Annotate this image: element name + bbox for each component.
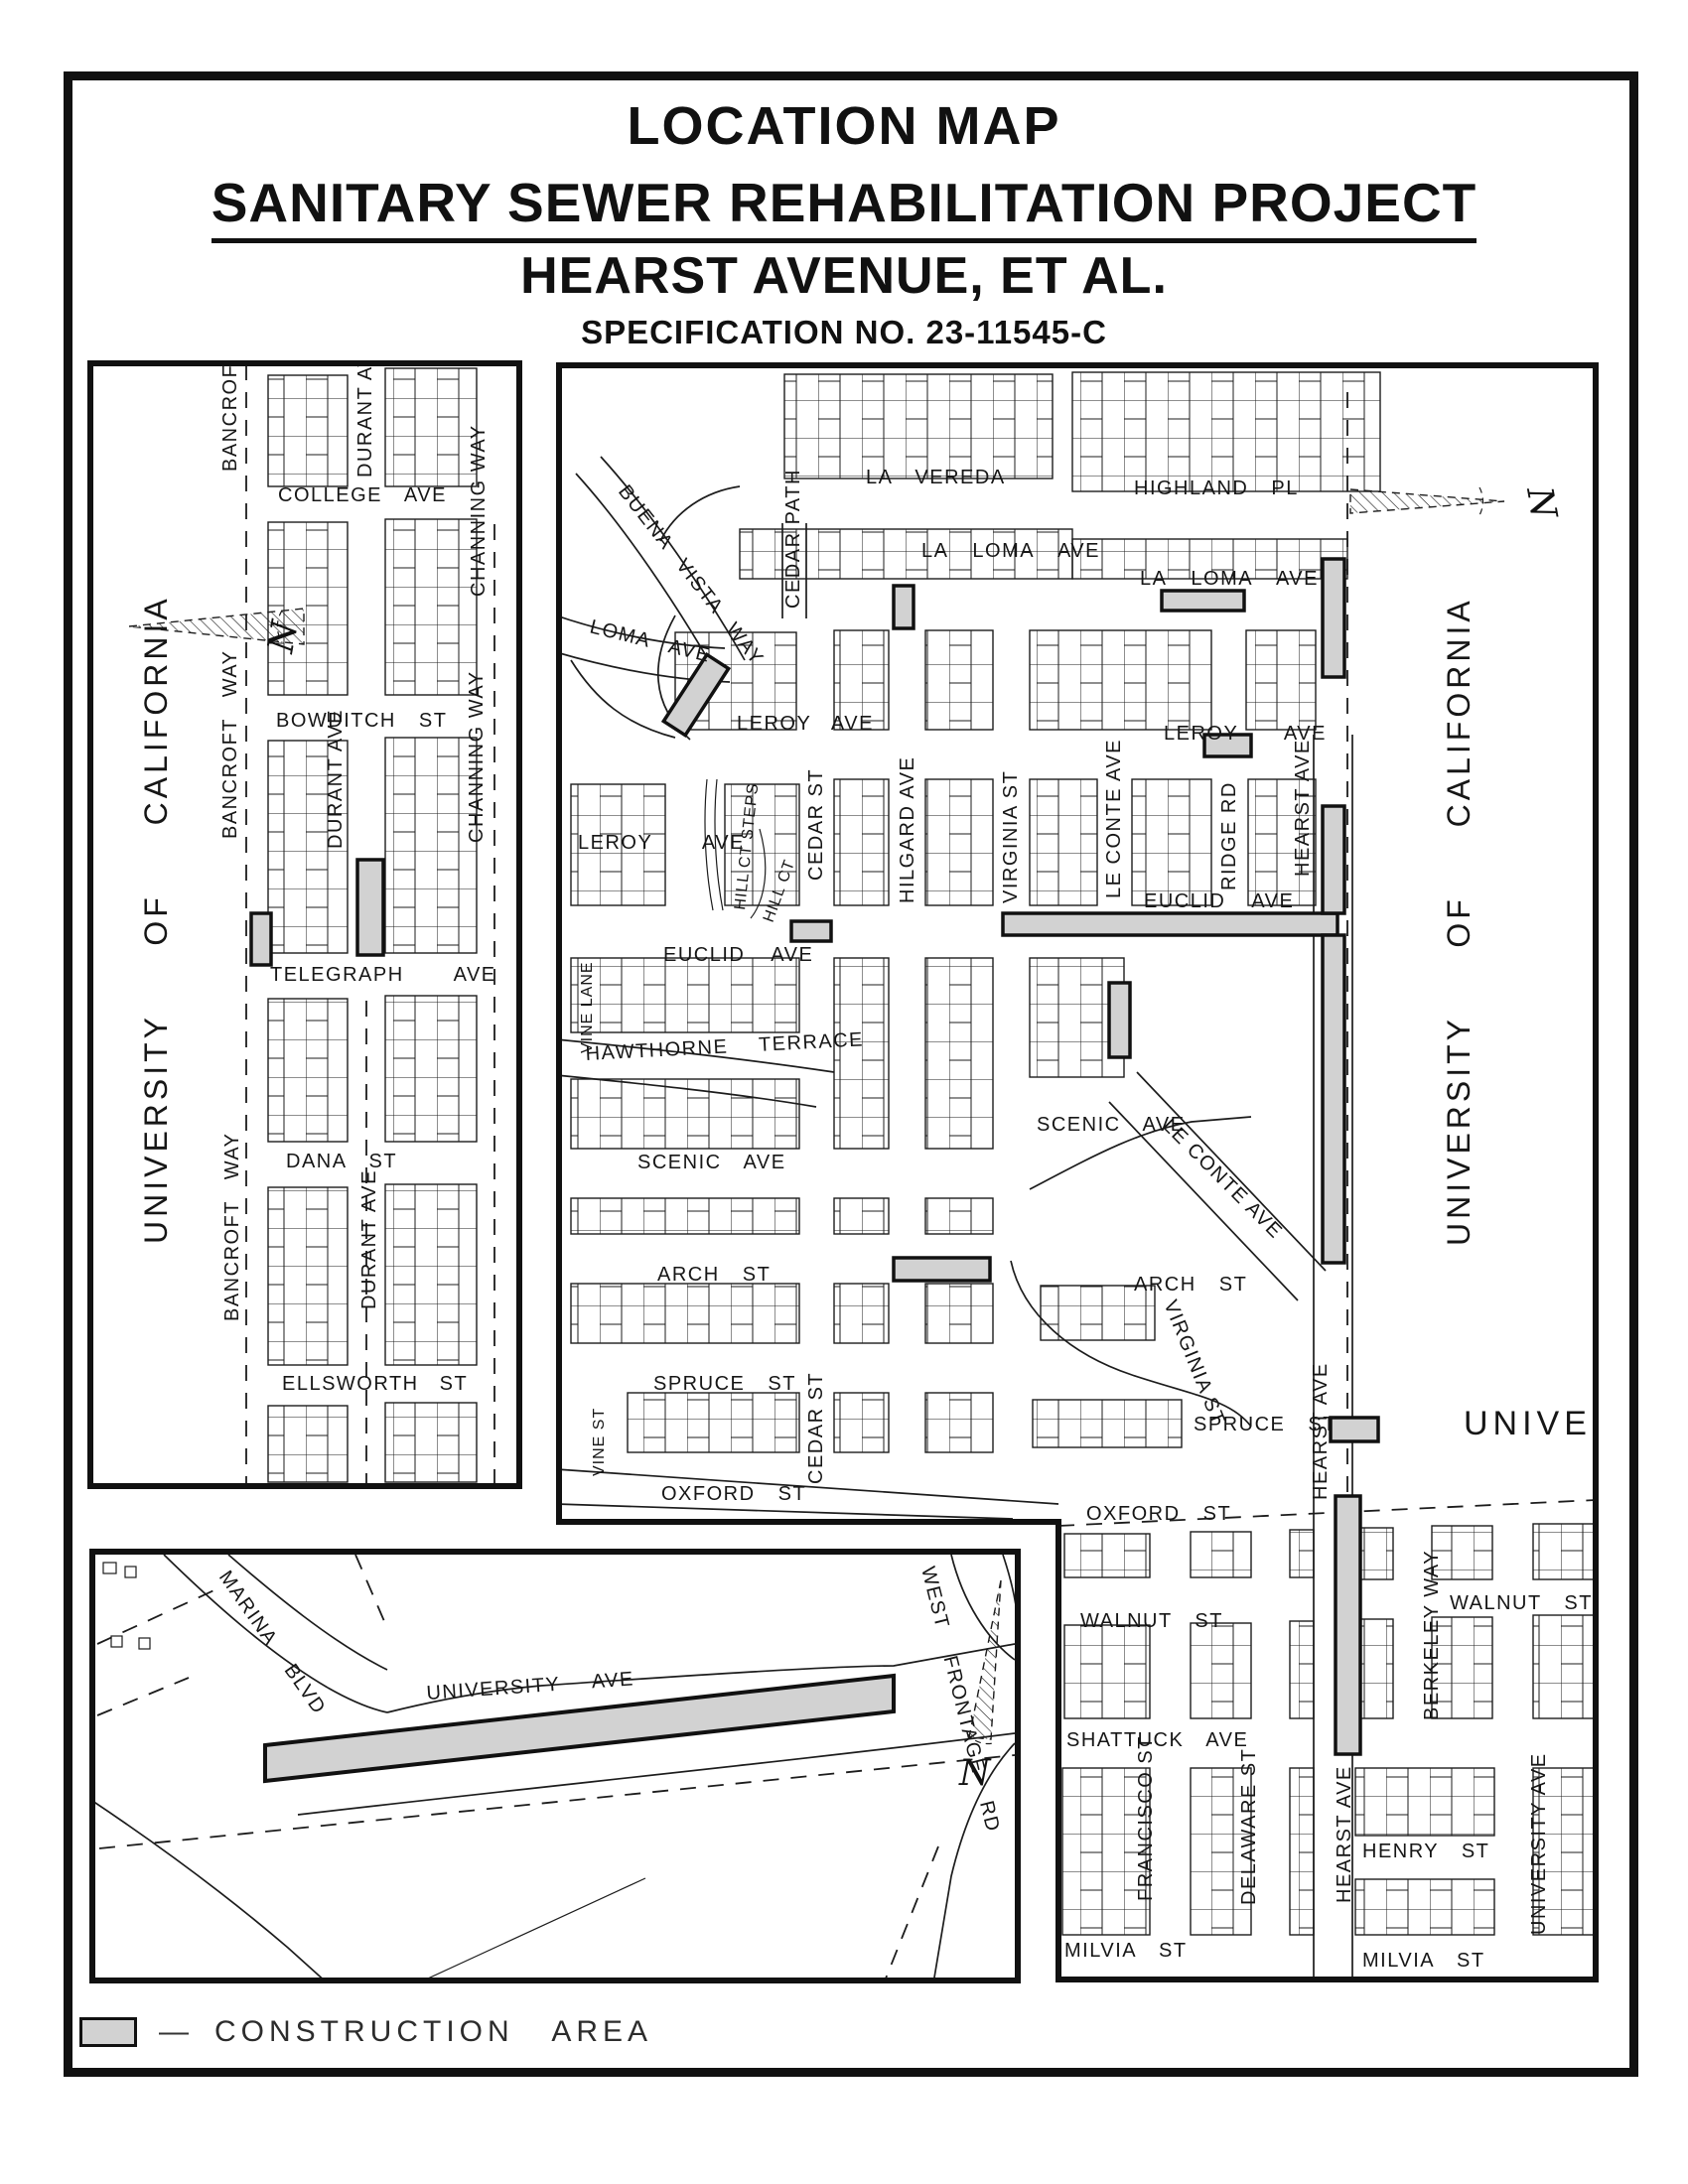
street-label: DURANT AVE <box>358 1169 380 1309</box>
page-title: LOCATION MAP <box>0 95 1688 157</box>
street-label: UNIVERSITY AVE <box>426 1668 635 1705</box>
construction-area <box>251 913 271 965</box>
street-label: LE CONTE AVE <box>1158 1115 1286 1243</box>
street-label: ARCH ST <box>657 1264 771 1286</box>
street-label: LA LOMA AVE <box>1140 568 1319 590</box>
street-label: COLLEGE AVE <box>278 484 447 506</box>
legend: — CONSTRUCTION AREA <box>79 2015 652 2049</box>
construction-area <box>894 1258 990 1281</box>
street-label: SCENIC AVE <box>637 1152 786 1173</box>
construction-area <box>1109 983 1130 1057</box>
street-label: LA VEREDA <box>866 467 1006 488</box>
street-label: OXFORD ST <box>1086 1503 1231 1525</box>
street-label: BANCROFT WAY <box>219 360 241 472</box>
street-label: HEARST AVE <box>1334 1765 1355 1903</box>
construction-area <box>1323 559 1344 677</box>
street-label: MILVIA ST <box>1064 1940 1188 1962</box>
street-label: SPRUCE ST <box>653 1373 796 1395</box>
specification-number: SPECIFICATION NO. 23-11545-C <box>0 314 1688 351</box>
street-label: CHANNING WAY <box>468 424 490 597</box>
street-label: HEARST AVE <box>1292 739 1314 877</box>
street-label: HENRY ST <box>1362 1841 1489 1862</box>
map-panel-telegraph-area: N BANCROFT WAY BANCROFT WAY BANCROFT WAY… <box>87 360 522 1489</box>
project-subtitle: HEARST AVENUE, ET AL. <box>0 246 1688 306</box>
legend-dash: — <box>159 2015 189 2049</box>
construction-area <box>1336 1496 1360 1754</box>
campus-label: UNIVERSITY OF CALIFORNIA <box>1441 597 1477 1246</box>
street-label: EUCLID AVE <box>1144 890 1294 912</box>
street-label: CEDAR PATH <box>782 469 804 609</box>
university-label-clipped: UNIVERSI <box>1464 1405 1599 1442</box>
buildings <box>103 1563 150 1649</box>
street-label: WALNUT ST <box>1450 1592 1593 1614</box>
campus-label: UNIVERSITY OF CALIFORNIA <box>138 595 174 1244</box>
map-panel-university-ave-area: N MARINA BLVD UNIVERSITY AVE WEST FRONTA… <box>89 1549 1021 1983</box>
street-label: MARINA BLVD <box>214 1567 330 1718</box>
street-label: TELEGRAPH AVE <box>270 964 496 986</box>
construction-area <box>1323 806 1344 913</box>
street-label: VINE LANE <box>579 961 596 1053</box>
construction-area <box>1162 591 1244 611</box>
street-label: FRANCISCO ST <box>1135 1735 1157 1901</box>
north-letter: N <box>1518 482 1564 523</box>
street-label: UNIVERSITY AVE <box>1528 1752 1550 1935</box>
street-label: LE CONTE AVE <box>1103 739 1125 898</box>
street-label: DURANT AVE <box>354 360 376 478</box>
street-label: HIGHLAND PL <box>1134 478 1299 499</box>
construction-area <box>357 860 383 955</box>
legend-label: CONSTRUCTION AREA <box>214 2015 652 2049</box>
street-label: VIRGINIA ST <box>1000 770 1022 903</box>
construction-area <box>791 921 831 941</box>
street-label: CHANNING WAY <box>466 670 488 843</box>
construction-area-swatch <box>79 2017 137 2047</box>
location-map-page: LOCATION MAP SANITARY SEWER REHABILITATI… <box>0 0 1688 2184</box>
street-label: BANCROFT WAY <box>221 1132 243 1321</box>
street-label: VINE ST <box>591 1408 608 1476</box>
street-label: CEDAR ST <box>805 1372 827 1484</box>
street-label: WALNUT ST <box>1080 1610 1223 1632</box>
construction-area <box>894 586 914 628</box>
project-title: SANITARY SEWER REHABILITATION PROJECT <box>0 171 1688 243</box>
street-label: SHATTUCK AVE <box>1066 1729 1248 1751</box>
street-label: OXFORD ST <box>661 1483 806 1505</box>
street-label: DANA ST <box>286 1151 397 1172</box>
street-label: BANCROFT WAY <box>219 649 241 839</box>
street-label: ELLSWORTH ST <box>282 1373 468 1395</box>
street-label: HILGARD AVE <box>897 756 918 903</box>
street-label: RIDGE RD <box>1218 781 1240 890</box>
street-label: MILVIA ST <box>1362 1950 1485 1972</box>
street-label: DELAWARE ST <box>1238 1748 1260 1905</box>
street-label: LEROY AVE <box>737 713 874 735</box>
street-label: HEARST AVE <box>1310 1362 1332 1500</box>
north-arrow-icon: N <box>1350 482 1564 523</box>
street-label: EUCLID AVE <box>663 944 813 966</box>
street-label: LA LOMA AVE <box>921 540 1100 562</box>
street-label: LOMA AVE <box>588 616 713 667</box>
street-lines <box>89 1555 1017 1983</box>
construction-area <box>1331 1418 1378 1441</box>
street-label: HAWTHORNE TERRACE <box>585 1028 864 1065</box>
construction-area <box>1003 913 1337 935</box>
construction-area <box>1323 935 1344 1263</box>
street-label: BOWDITCH ST <box>276 710 448 732</box>
street-label: ARCH ST <box>1134 1274 1247 1296</box>
street-label: BERKELEY WAY <box>1421 1550 1443 1720</box>
street-label: LEROY AVE <box>578 832 745 854</box>
street-label: CEDAR ST <box>805 768 827 881</box>
